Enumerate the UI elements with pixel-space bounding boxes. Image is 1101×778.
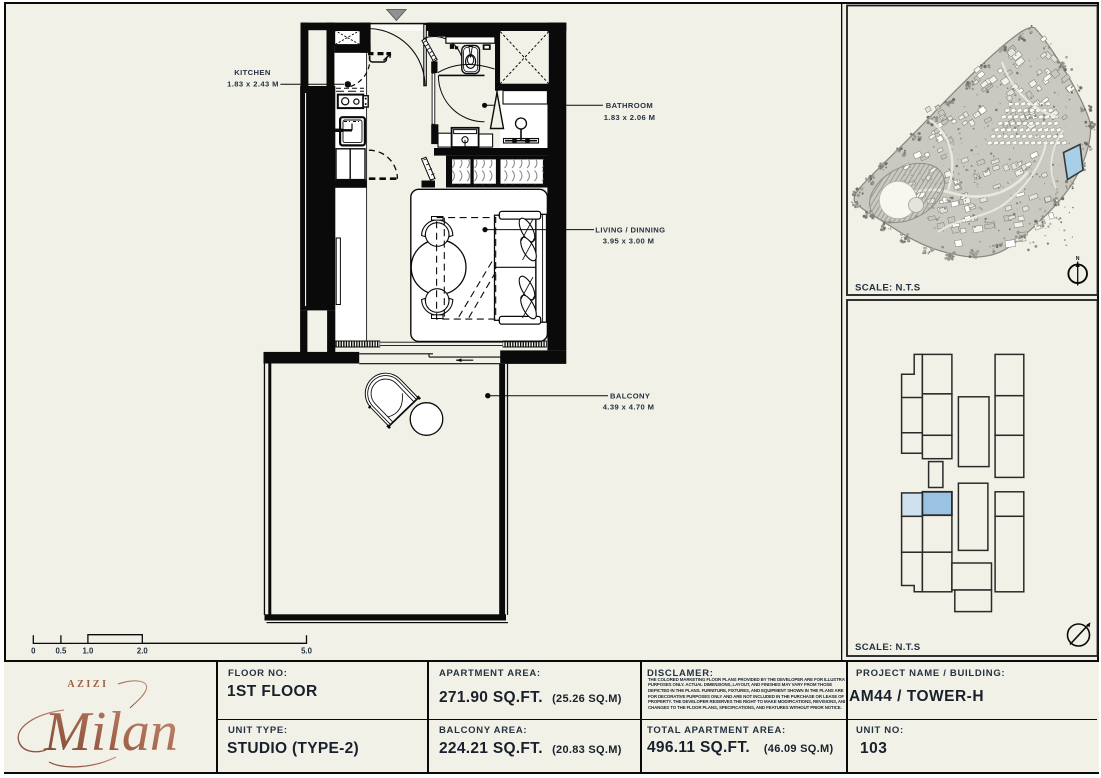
svg-text:AZIZI: AZIZI [67, 679, 108, 690]
svg-text:0: 0 [31, 647, 36, 656]
svg-text:1.83 x 2.06 M: 1.83 x 2.06 M [604, 113, 656, 122]
svg-text:3.95 x 3.00 M: 3.95 x 3.00 M [603, 237, 655, 246]
svg-text:4.39 x 4.70 M: 4.39 x 4.70 M [603, 403, 655, 412]
svg-text:5.0: 5.0 [301, 647, 313, 656]
svg-text:1.83 x 2.43 M: 1.83 x 2.43 M [227, 80, 279, 89]
svg-text:SCALE: N.T.S: SCALE: N.T.S [855, 642, 921, 653]
svg-text:N: N [1076, 256, 1080, 262]
svg-text:1.0: 1.0 [82, 647, 94, 656]
svg-text:SCALE: N.T.S: SCALE: N.T.S [855, 283, 921, 294]
svg-text:BATHROOM: BATHROOM [606, 101, 653, 110]
svg-text:0.5: 0.5 [55, 647, 67, 656]
svg-text:KITCHEN: KITCHEN [234, 68, 271, 77]
svg-text:2.0: 2.0 [137, 647, 149, 656]
svg-text:LIVING / DINNING: LIVING / DINNING [595, 225, 665, 234]
svg-text:BALCONY: BALCONY [610, 392, 650, 401]
